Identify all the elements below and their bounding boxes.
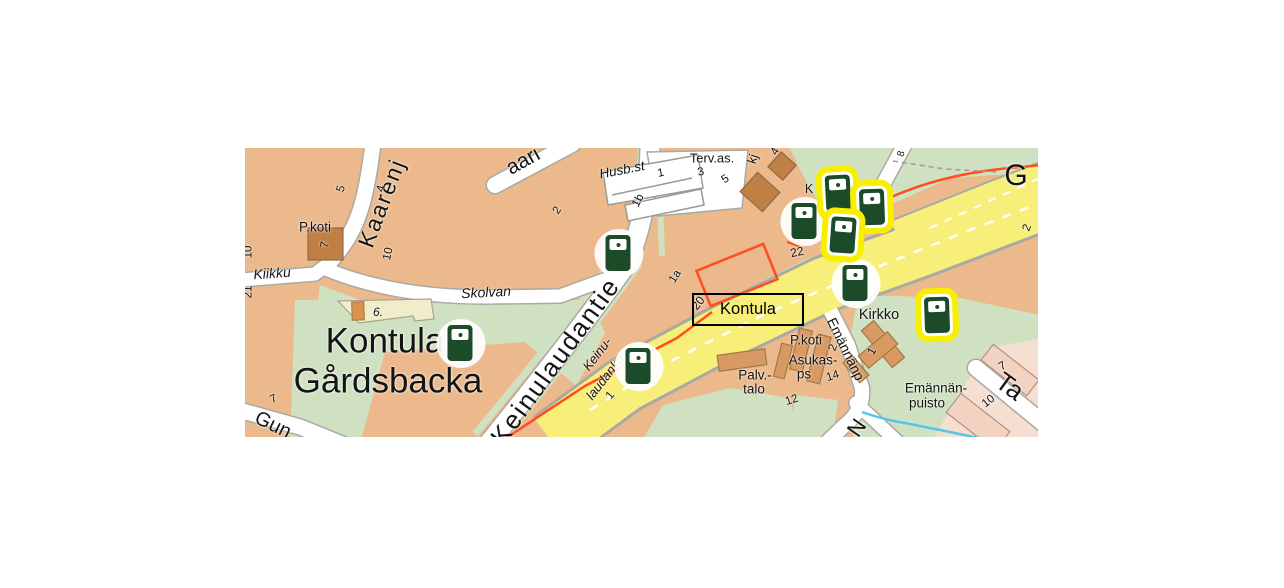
station-marker-5[interactable] xyxy=(842,264,869,302)
charging-station-icon xyxy=(842,264,869,302)
charging-station-icon xyxy=(605,234,632,272)
station-marker-9-highlighted[interactable] xyxy=(923,296,951,335)
marker-dot xyxy=(458,333,462,337)
charging-station-icon xyxy=(923,296,951,335)
map-markers-layer xyxy=(245,148,1038,437)
charging-station-icon xyxy=(824,173,853,212)
marker-dot xyxy=(935,305,939,309)
marker-dot xyxy=(636,356,640,360)
map-viewport[interactable]: KontulaGårdsbackaKeinulaudantieKaarenjaa… xyxy=(245,148,1038,437)
station-marker-3[interactable] xyxy=(625,347,652,385)
marker-dot xyxy=(841,225,845,229)
station-marker-4[interactable] xyxy=(791,202,818,240)
marker-dot xyxy=(835,183,839,187)
page-background: { "palette": { "base_tan": "#ebb98c", "g… xyxy=(0,0,1284,588)
marker-dot xyxy=(802,211,806,215)
station-marker-2[interactable] xyxy=(447,324,474,362)
station-marker-8-highlighted[interactable] xyxy=(828,215,858,255)
marker-dot xyxy=(616,243,620,247)
marker-dot xyxy=(853,273,857,277)
marker-dot xyxy=(870,197,874,201)
charging-station-icon xyxy=(625,347,652,385)
charging-station-icon xyxy=(791,202,818,240)
charging-station-icon xyxy=(828,215,858,255)
station-marker-1[interactable] xyxy=(605,234,632,272)
station-marker-6-highlighted[interactable] xyxy=(824,173,853,212)
station-marker-7-highlighted[interactable] xyxy=(858,188,886,227)
charging-station-icon xyxy=(447,324,474,362)
charging-station-icon xyxy=(858,188,886,227)
